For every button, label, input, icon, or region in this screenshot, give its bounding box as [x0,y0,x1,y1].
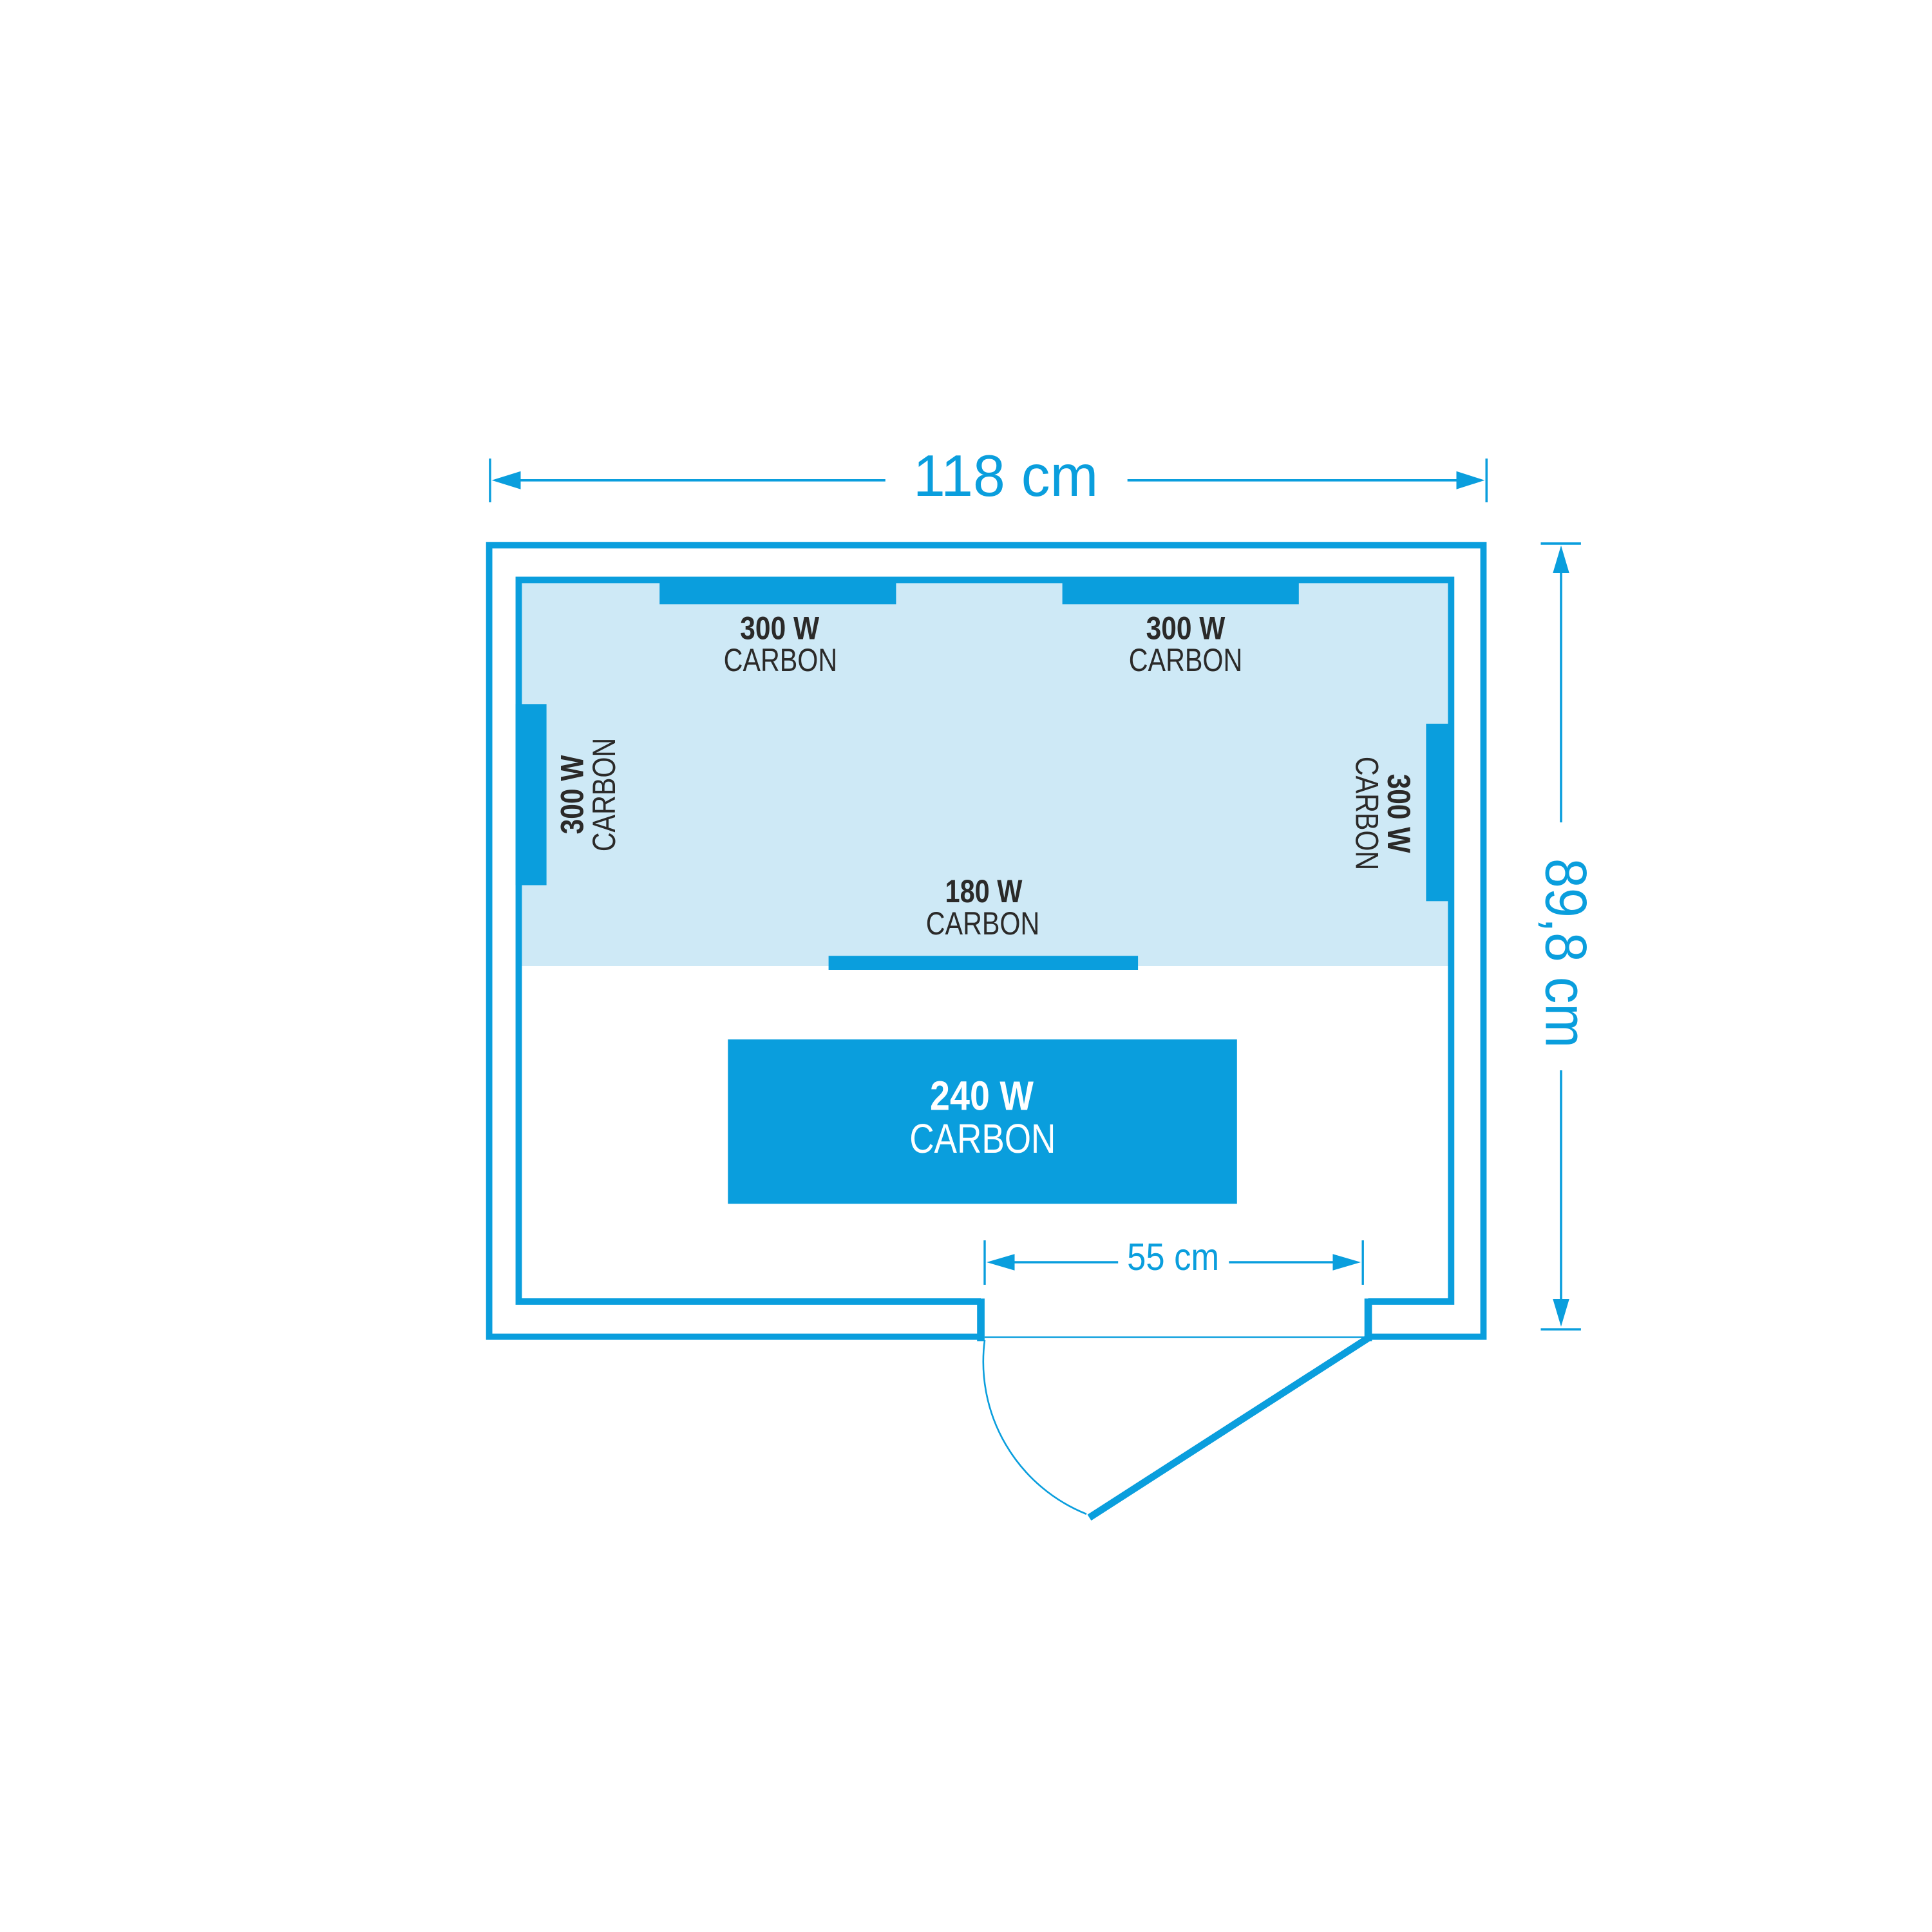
svg-text:55 cm: 55 cm [1127,1235,1219,1278]
svg-text:180 W: 180 W [945,873,1023,909]
svg-text:CARBON: CARBON [909,1116,1056,1162]
svg-text:CARBON: CARBON [1349,757,1385,870]
svg-text:300 W: 300 W [740,610,819,646]
svg-text:CARBON: CARBON [1129,642,1242,678]
svg-text:CARBON: CARBON [926,905,1039,942]
svg-text:CARBON: CARBON [586,738,622,851]
svg-text:300 W: 300 W [1381,774,1417,853]
svg-text:118 cm: 118 cm [913,443,1098,509]
svg-text:300 W: 300 W [1146,610,1226,646]
svg-text:CARBON: CARBON [724,642,837,678]
svg-text:300 W: 300 W [554,755,590,834]
svg-text:240 W: 240 W [930,1073,1034,1119]
svg-text:89,8 cm: 89,8 cm [1533,858,1598,1048]
